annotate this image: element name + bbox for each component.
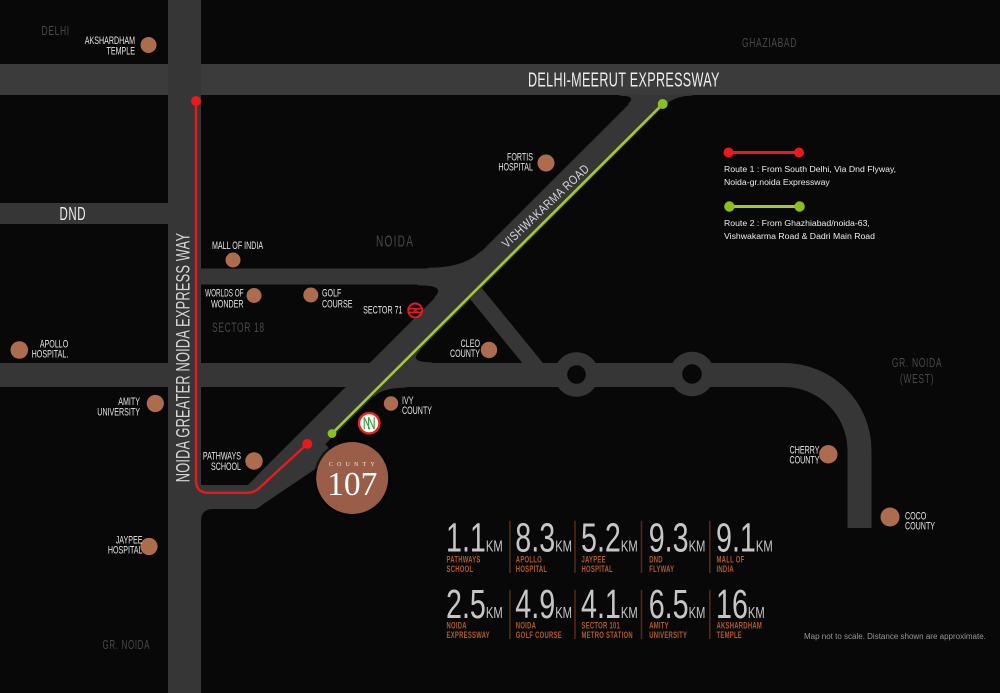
svg-text:GOLF COURSE: GOLF COURSE: [516, 630, 562, 641]
svg-text:COUNTY: COUNTY: [402, 405, 432, 417]
svg-text:SECTOR 18: SECTOR 18: [212, 321, 265, 335]
svg-text:SCHOOL: SCHOOL: [447, 564, 474, 575]
svg-text:MALL OF INDIA: MALL OF INDIA: [212, 240, 264, 252]
svg-text:NOIDA GREATER NOIDA EXPRESS WA: NOIDA GREATER NOIDA EXPRESS WAY: [173, 233, 194, 482]
svg-text:SECTOR 71: SECTOR 71: [363, 304, 402, 316]
svg-text:Noida-gr.noida Expressway: Noida-gr.noida Expressway: [724, 177, 830, 187]
svg-text:INDIA: INDIA: [717, 564, 735, 575]
svg-text:HOSPITAL.: HOSPITAL.: [32, 348, 69, 360]
svg-text:FLYWAY: FLYWAY: [649, 564, 674, 575]
svg-text:HOSPITAL: HOSPITAL: [516, 564, 548, 575]
svg-text:GHAZIABAD: GHAZIABAD: [742, 36, 797, 50]
svg-text:HOSPITAL: HOSPITAL: [498, 161, 533, 173]
svg-text:TEMPLE: TEMPLE: [107, 45, 135, 57]
svg-text:DELHI-MEERUT EXPRESSWAY: DELHI-MEERUT EXPRESSWAY: [528, 68, 720, 91]
svg-text:UNIVERSITY: UNIVERSITY: [649, 630, 687, 641]
svg-text:HOSPITAL: HOSPITAL: [582, 564, 614, 575]
svg-text:COUNTY: COUNTY: [905, 520, 935, 532]
svg-text:METRO STATION: METRO STATION: [582, 630, 633, 641]
svg-text:HOSPITAL: HOSPITAL: [108, 544, 143, 556]
svg-text:COUNTY: COUNTY: [450, 348, 480, 360]
svg-text:Map not to scale. Distance sho: Map not to scale. Distance shown are app…: [804, 632, 986, 641]
svg-text:SCHOOL: SCHOOL: [211, 461, 241, 473]
svg-text:Vishwakarma Road & Dadri Main: Vishwakarma Road & Dadri Main Road: [724, 231, 875, 241]
svg-text:GR. NOIDA: GR. NOIDA: [103, 638, 151, 652]
svg-text:Route 1 : From South Delhi, Vi: Route 1 : From South Delhi, Via Dnd Flyw…: [724, 164, 896, 174]
svg-text:Route 2 : From Ghazhiabad/noid: Route 2 : From Ghazhiabad/noida-63,: [724, 218, 870, 228]
svg-text:TEMPLE: TEMPLE: [717, 630, 743, 641]
svg-text:NOIDA: NOIDA: [376, 232, 414, 250]
svg-text:WONDER: WONDER: [211, 298, 244, 310]
svg-text:DELHI: DELHI: [42, 24, 70, 38]
svg-text:COURSE: COURSE: [322, 298, 352, 310]
svg-text:UNIVERSITY: UNIVERSITY: [97, 406, 140, 418]
svg-text:COUNTY: COUNTY: [789, 454, 819, 466]
svg-text:107: 107: [327, 466, 377, 503]
svg-text:(WEST): (WEST): [900, 372, 934, 386]
svg-text:GR. NOIDA: GR. NOIDA: [892, 356, 942, 370]
svg-text:EXPRESSWAY: EXPRESSWAY: [447, 630, 490, 641]
svg-text:DND: DND: [60, 204, 87, 224]
